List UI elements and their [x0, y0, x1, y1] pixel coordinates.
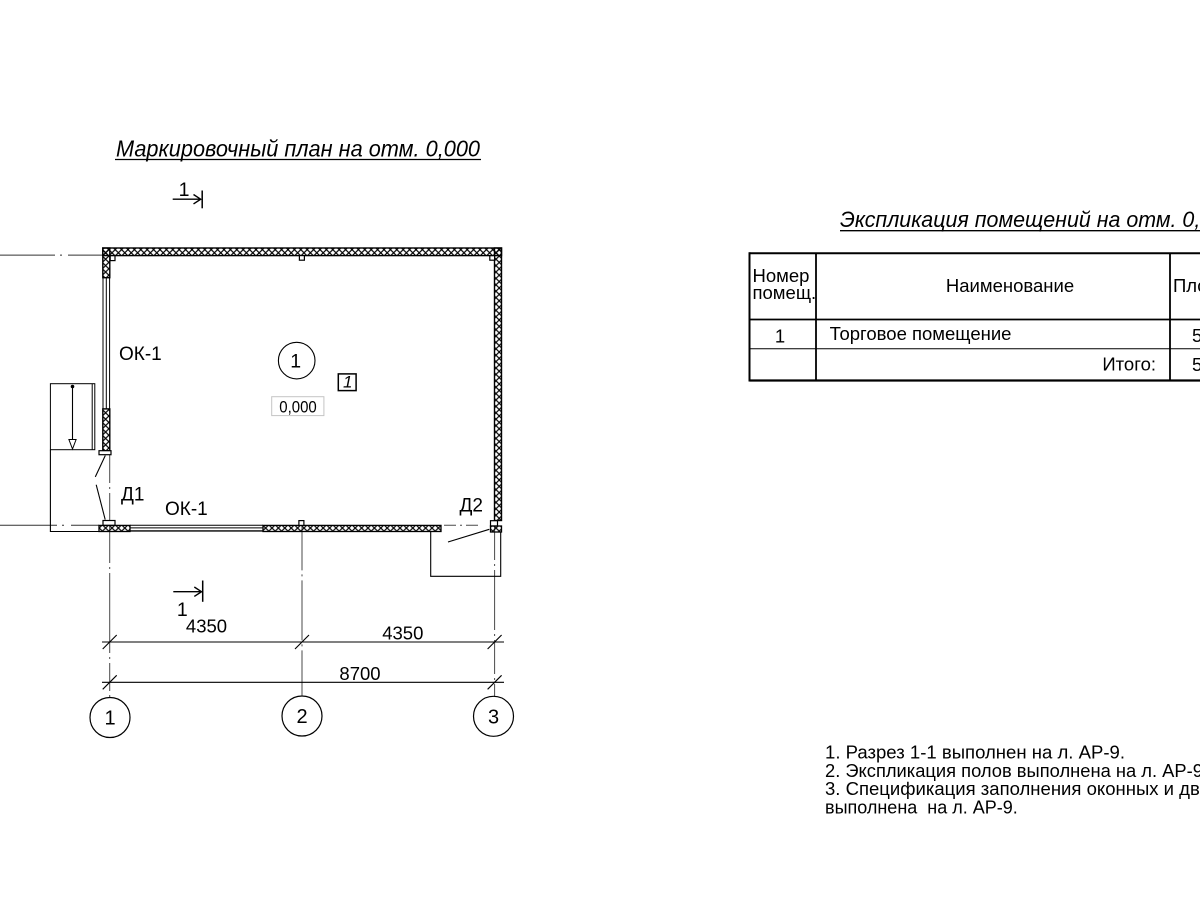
svg-text:1. Разрез 1-1 выполнен на л. А: 1. Разрез 1-1 выполнен на л. АР-9. — [825, 742, 1125, 762]
svg-text:Маркировочный план на отм. 0,0: Маркировочный план на отм. 0,000 — [116, 136, 480, 162]
svg-text:2: 2 — [296, 706, 307, 728]
svg-text:8700: 8700 — [339, 663, 380, 684]
svg-text:54,9: 54,9 — [1192, 354, 1200, 375]
svg-text:1: 1 — [343, 373, 352, 392]
svg-text:Д2: Д2 — [460, 496, 483, 517]
svg-text:54,9: 54,9 — [1192, 325, 1200, 346]
svg-text:2. Экспликация полов выполнена: 2. Экспликация полов выполнена на л. АР-… — [825, 761, 1200, 781]
svg-text:Д1: Д1 — [121, 485, 144, 506]
svg-text:4350: 4350 — [186, 616, 227, 637]
svg-text:Экспликация помещений на отм.: Экспликация помещений на отм. 0,000 — [840, 207, 1200, 232]
svg-text:выполнена на л. АР-9.: выполнена на л. АР-9. — [825, 798, 1018, 818]
svg-text:1: 1 — [104, 708, 115, 730]
svg-text:Торговое помещение: Торговое помещение — [830, 323, 1012, 344]
svg-text:Площадь,: Площадь, — [1173, 275, 1200, 296]
svg-text:4350: 4350 — [382, 622, 423, 643]
svg-text:Итого:: Итого: — [1102, 354, 1156, 375]
svg-text:1: 1 — [775, 326, 785, 347]
svg-text:ОК-1: ОК-1 — [119, 344, 162, 365]
svg-text:1: 1 — [179, 179, 190, 201]
svg-text:ОК-1: ОК-1 — [165, 499, 208, 520]
svg-text:3. Спецификация заполнения око: 3. Спецификация заполнения оконных и две… — [825, 779, 1200, 799]
svg-text:Наименование: Наименование — [946, 275, 1074, 296]
svg-text:1: 1 — [290, 351, 301, 373]
svg-text:0,000: 0,000 — [279, 398, 317, 416]
svg-text:3: 3 — [488, 706, 499, 728]
svg-text:помещ.: помещ. — [753, 282, 817, 303]
